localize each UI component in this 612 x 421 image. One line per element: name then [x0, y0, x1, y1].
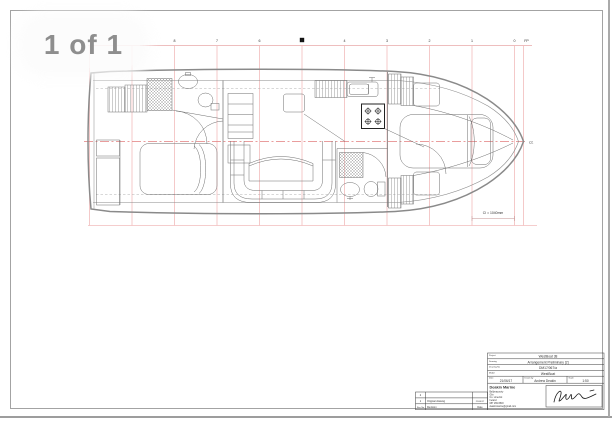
address-line: Ireland	[490, 399, 498, 402]
field-label: Date	[489, 377, 494, 380]
bow-platform-edge	[414, 143, 514, 176]
station-label: 3	[386, 39, 388, 43]
fwd-locker	[401, 176, 414, 205]
aft-wardrobe-hatched	[147, 79, 172, 111]
field-label: Drawing No	[489, 366, 501, 369]
aft-shelf	[97, 158, 120, 205]
aft-cabin	[97, 73, 224, 206]
page-indicator-text: 1 of 1	[44, 29, 123, 61]
head-cistern	[378, 182, 386, 196]
address-line: 087 269 8818	[490, 403, 505, 405]
address-line: Ballynacourty	[490, 390, 505, 393]
dimension: CI = 1040mm	[472, 211, 515, 221]
fwd-shelf	[414, 172, 440, 195]
field-value: WestBoat 38	[539, 355, 558, 359]
field-value: DM17/067/a	[539, 366, 557, 370]
station-label: 1	[471, 39, 473, 43]
field-label: Drawn by	[525, 377, 535, 380]
forward-cabin	[388, 72, 514, 208]
rev-desc: Original drawing	[427, 400, 446, 403]
field-label: Project	[489, 354, 496, 357]
aft-head-cistern	[211, 104, 219, 111]
title-block-text: Project WestBoat 38 Drawing Arrangement …	[489, 354, 589, 408]
aft-locker	[108, 87, 125, 112]
station-label: 4	[344, 39, 346, 43]
field-label: Scale	[569, 378, 575, 380]
shower-hatched	[340, 153, 364, 178]
rev-header: Rev. No	[417, 407, 425, 409]
galley-drainer-hatched	[315, 81, 347, 98]
galley-stove	[362, 104, 385, 129]
fwd-berth	[400, 115, 493, 169]
field-label: Drawing	[489, 360, 497, 363]
page-bottom-edge	[0, 416, 612, 418]
centerline-symbol: CL	[529, 140, 534, 144]
field-value: Andrew Deakin	[534, 379, 556, 383]
field-value: 21/06/17	[500, 379, 513, 383]
signature-box	[546, 386, 602, 408]
station-grid	[88, 46, 537, 226]
aft-berth-pillow	[199, 145, 206, 194]
dimension-note: CI = 1040mm	[483, 211, 504, 215]
aft-head-tap	[186, 73, 191, 76]
settee-inner	[244, 141, 323, 191]
saloon-seat	[284, 94, 305, 112]
aft-berth	[140, 144, 217, 195]
head-door-swing	[363, 153, 386, 178]
station-label: 7	[216, 39, 218, 43]
aft-locker	[125, 85, 147, 112]
head-sink-tap	[347, 197, 353, 201]
field-value: WestBoat	[541, 372, 555, 376]
saloon-table	[249, 157, 313, 182]
address-line: deakinmarine@gmail.com	[490, 405, 517, 408]
aft-head-sink	[179, 75, 198, 89]
field-value: 1:50	[582, 379, 588, 383]
fwd-locker	[389, 178, 402, 208]
address-line: Glin	[490, 394, 495, 396]
fwd-shelf	[414, 83, 440, 106]
page-right-edge	[608, 0, 610, 417]
station-label: 2	[429, 39, 431, 43]
galley-sink-bowl	[350, 84, 369, 95]
station-label: FP	[524, 39, 529, 43]
station-label: 6	[259, 39, 261, 43]
aft-door-swing	[176, 111, 207, 144]
station-labels: 8 7 6 5 4 3 2 1 0 FP	[174, 38, 530, 43]
aft-door-swing	[194, 121, 223, 149]
fwd-locker	[389, 74, 402, 104]
rev-no: 1	[420, 400, 422, 403]
rev-date: 21/06/17	[476, 401, 485, 403]
field-value: Arrangement Preliminary [2]	[527, 360, 568, 364]
fwd-locker	[401, 77, 414, 106]
stove-burners	[365, 108, 382, 126]
bow-platform-edge	[414, 106, 514, 141]
companionway-steps	[228, 94, 253, 164]
signature	[554, 390, 596, 402]
aft-shelf	[97, 140, 120, 156]
revision-table-text: 2 1 Original drawing 21/06/17 Rev. No Re…	[417, 394, 485, 409]
galley-tap	[369, 78, 375, 83]
page-indicator-badge: 1 of 1	[27, 22, 140, 68]
field-label: Model	[489, 372, 495, 374]
station-label: 8	[174, 39, 176, 43]
aft-berth-pillow	[194, 146, 201, 192]
saloon	[231, 94, 336, 203]
rev-no: 2	[420, 394, 422, 397]
rev-header: Revision	[427, 406, 437, 409]
rev-header: Date	[477, 406, 483, 409]
galley-counter-edge	[304, 114, 345, 142]
company-name: Deakin Marine	[490, 386, 516, 390]
station-label: 0	[514, 39, 516, 43]
pdf-page: 8 7 6 5 4 3 2 1 0 FP CL	[0, 0, 612, 421]
address-line: Co. Limerick	[490, 396, 504, 399]
